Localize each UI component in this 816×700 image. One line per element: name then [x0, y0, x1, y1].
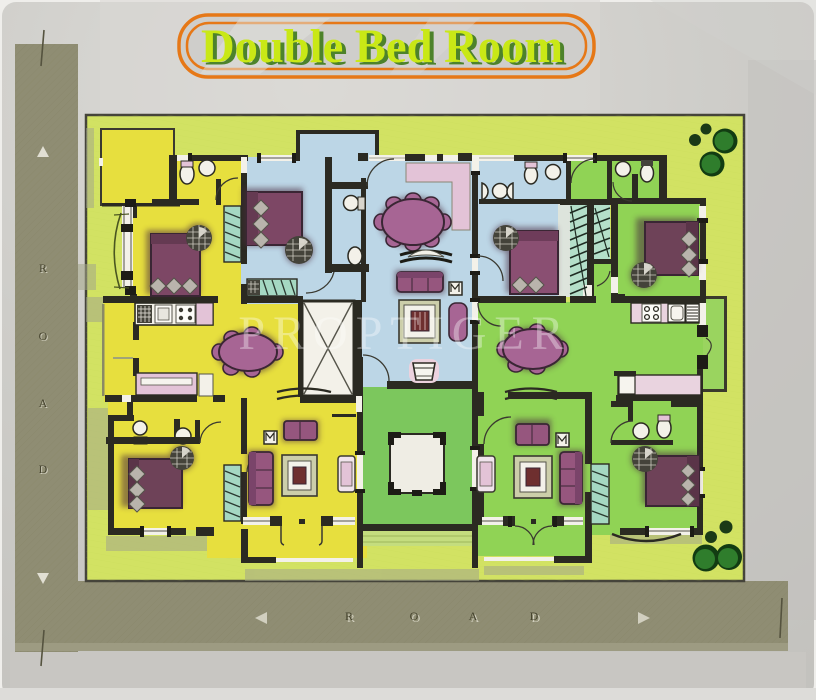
- svg-text:A: A: [39, 396, 48, 410]
- svg-text:R: R: [345, 609, 353, 623]
- svg-text:Double Bed Room: Double Bed Room: [201, 20, 563, 73]
- svg-text:A: A: [469, 609, 478, 623]
- svg-text:O: O: [410, 609, 419, 623]
- svg-text:R: R: [39, 261, 47, 275]
- svg-text:O: O: [39, 329, 48, 343]
- svg-text:PROPTIGER: PROPTIGER: [238, 307, 571, 360]
- svg-text:D: D: [530, 609, 539, 623]
- svg-text:D: D: [39, 462, 48, 476]
